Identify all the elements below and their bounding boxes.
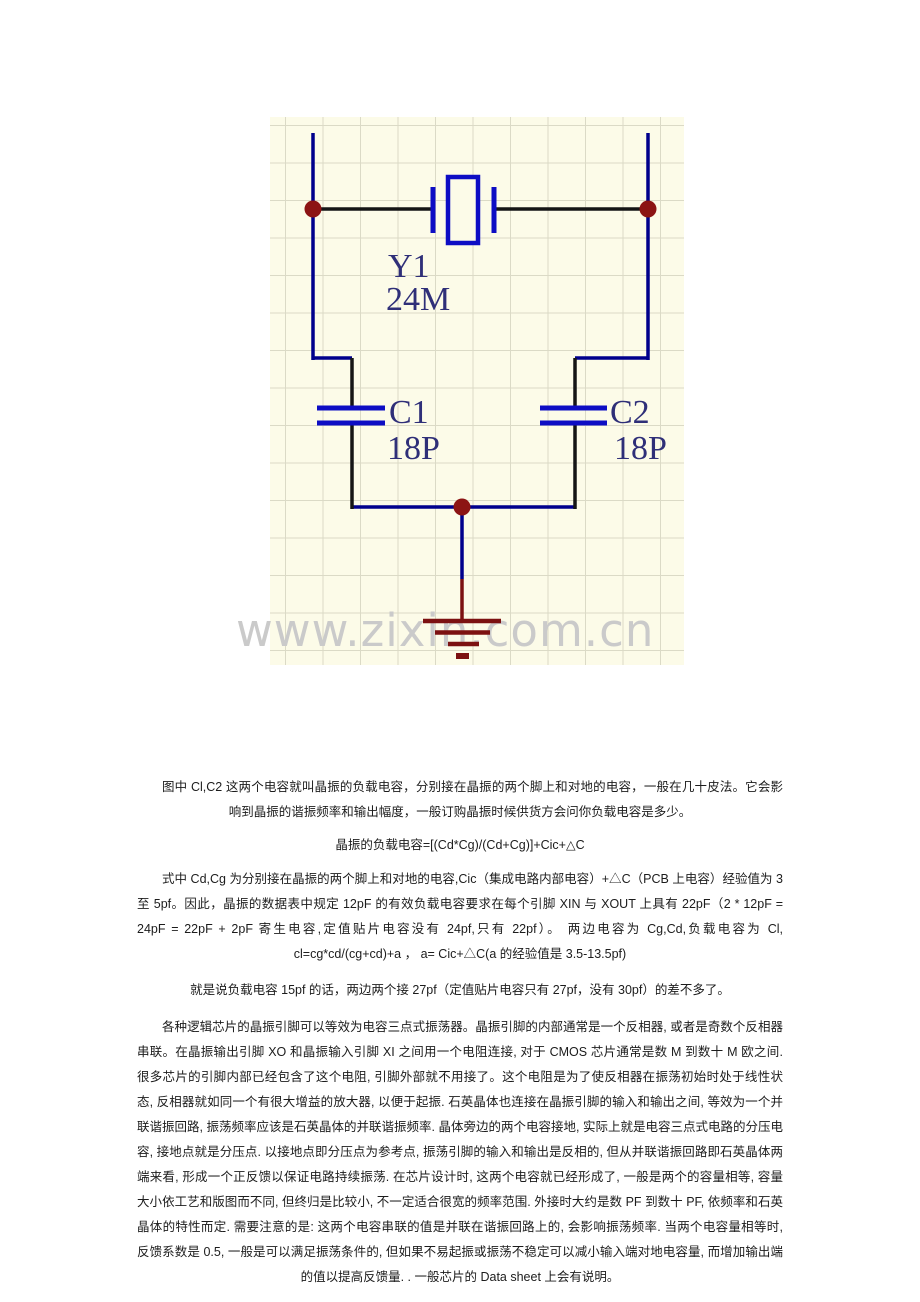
c2-designator: C2 (610, 394, 650, 431)
paragraph-intro: 图中 Cl,C2 这两个电容就叫晶振的负载电容，分别接在晶振的两个脚上和对地的电… (137, 775, 783, 825)
circuit-svg: Y1 24M C1 18P C2 18P (270, 117, 684, 665)
c1-designator: C1 (389, 394, 429, 431)
junction-dot-center (454, 499, 471, 516)
crystal-value: 24M (386, 281, 450, 318)
paragraph-oscillator-theory: 各种逻辑芯片的晶振引脚可以等效为电容三点式振荡器。晶振引脚的内部通常是一个反相器… (137, 1015, 783, 1290)
junction-dot-right (640, 201, 657, 218)
junction-dot-left (305, 201, 322, 218)
load-capacitance-formula: 晶振的负载电容=[(Cd*Cg)/(Cd+Cg)]+Cic+△C (137, 833, 783, 858)
crystal-designator: Y1 (388, 248, 430, 285)
document-page: www.zixin.com.cn (0, 0, 920, 1302)
paragraph-example: 就是说负载电容 15pf 的话，两边两个接 27pf（定值贴片电容只有 27pf… (137, 978, 783, 1003)
c2-value: 18P (614, 430, 667, 467)
c1-value: 18P (387, 430, 440, 467)
crystal-oscillator-circuit: Y1 24M C1 18P C2 18P (270, 117, 684, 665)
paragraph-formula-explanation: 式中 Cd,Cg 为分别接在晶振的两个脚上和对地的电容,Cic（集成电路内部电容… (137, 867, 783, 967)
crystal-body (448, 177, 478, 243)
article-text: 图中 Cl,C2 这两个电容就叫晶振的负载电容，分别接在晶振的两个脚上和对地的电… (137, 775, 783, 1290)
